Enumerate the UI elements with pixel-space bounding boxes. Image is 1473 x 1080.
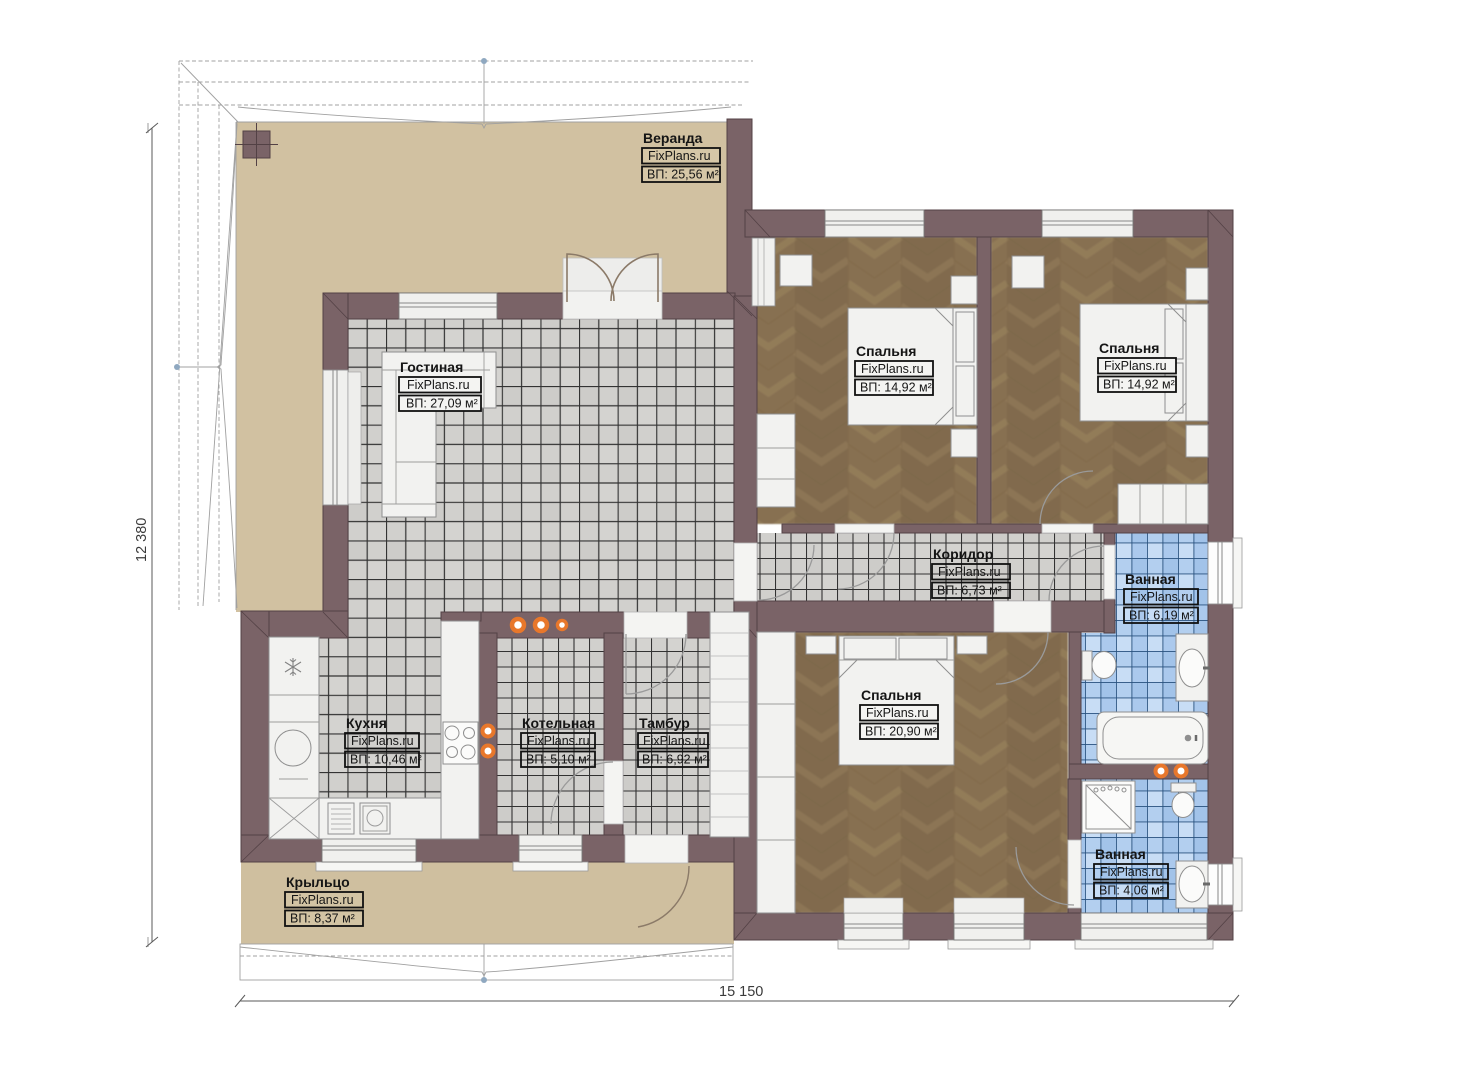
svg-text:Кухня: Кухня <box>346 715 387 731</box>
svg-text:FixPlans.ru: FixPlans.ru <box>527 734 590 748</box>
svg-text:FixPlans.ru: FixPlans.ru <box>407 378 470 392</box>
svg-text:ВП: 8,37 м²: ВП: 8,37 м² <box>290 912 355 926</box>
svg-text:Спальня: Спальня <box>1099 340 1159 356</box>
svg-text:ВП: 4,06 м²: ВП: 4,06 м² <box>1099 884 1164 898</box>
svg-text:Веранда: Веранда <box>643 130 703 146</box>
svg-text:ВП: 10,46 м²: ВП: 10,46 м² <box>350 753 422 767</box>
svg-text:ВП: 6,73 м²: ВП: 6,73 м² <box>937 584 1002 598</box>
svg-text:ВП: 6,19 м²: ВП: 6,19 м² <box>1129 609 1194 623</box>
svg-text:Котельная: Котельная <box>522 715 595 731</box>
svg-text:ВП: 27,09 м²: ВП: 27,09 м² <box>406 397 478 411</box>
svg-text:FixPlans.ru: FixPlans.ru <box>861 362 924 376</box>
svg-text:Ванная: Ванная <box>1125 571 1176 587</box>
svg-text:ВП: 6,92 м²: ВП: 6,92 м² <box>642 753 707 767</box>
svg-text:FixPlans.ru: FixPlans.ru <box>1100 865 1163 879</box>
svg-text:ВП: 14,92 м²: ВП: 14,92 м² <box>860 381 932 395</box>
svg-text:Тамбур: Тамбур <box>639 715 690 731</box>
svg-text:FixPlans.ru: FixPlans.ru <box>351 734 414 748</box>
svg-text:FixPlans.ru: FixPlans.ru <box>1104 359 1167 373</box>
svg-text:Коридор: Коридор <box>933 546 993 562</box>
svg-text:Крыльцо: Крыльцо <box>286 874 350 890</box>
svg-text:Гостиная: Гостиная <box>400 359 463 375</box>
svg-text:FixPlans.ru: FixPlans.ru <box>291 893 354 907</box>
svg-text:12 380: 12 380 <box>134 518 150 562</box>
svg-text:FixPlans.ru: FixPlans.ru <box>938 565 1001 579</box>
svg-text:Спальня: Спальня <box>856 343 916 359</box>
svg-text:FixPlans.ru: FixPlans.ru <box>643 734 706 748</box>
svg-text:ВП: 20,90 м²: ВП: 20,90 м² <box>865 725 937 739</box>
svg-text:FixPlans.ru: FixPlans.ru <box>866 706 929 720</box>
svg-text:FixPlans.ru: FixPlans.ru <box>1130 590 1193 604</box>
svg-text:FixPlans.ru: FixPlans.ru <box>648 149 711 163</box>
svg-text:ВП: 5,10 м²: ВП: 5,10 м² <box>526 753 591 767</box>
svg-text:Ванная: Ванная <box>1095 846 1146 862</box>
svg-text:ВП: 14,92 м²: ВП: 14,92 м² <box>1103 378 1175 392</box>
svg-text:15 150: 15 150 <box>719 984 763 1000</box>
svg-text:Спальня: Спальня <box>861 687 921 703</box>
svg-text:ВП: 25,56 м²: ВП: 25,56 м² <box>647 168 719 182</box>
